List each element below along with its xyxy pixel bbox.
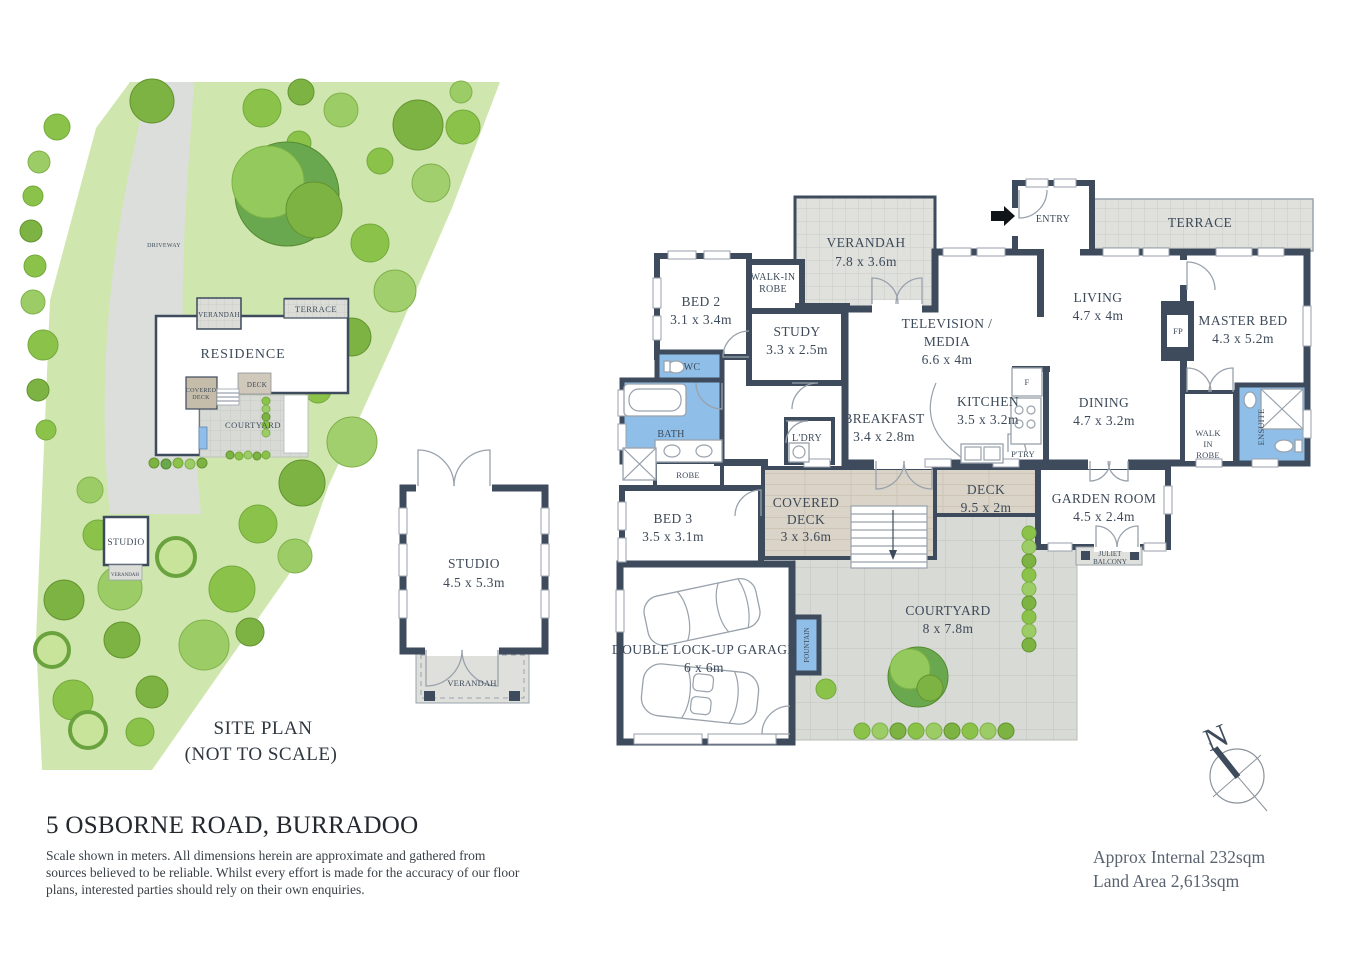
bush-icon bbox=[262, 397, 270, 405]
laundry-label: L'DRY bbox=[792, 433, 822, 444]
toilet-cistern bbox=[664, 361, 670, 372]
deck-label: DECK bbox=[967, 482, 1005, 497]
north-compass-icon: N bbox=[1199, 716, 1267, 811]
window bbox=[399, 590, 407, 618]
bush-icon bbox=[1022, 554, 1036, 568]
window bbox=[1252, 459, 1278, 467]
tree-icon bbox=[20, 220, 42, 242]
site-verandah-label: VERANDAH bbox=[198, 311, 240, 319]
door-opening bbox=[1044, 246, 1080, 258]
bush-icon bbox=[262, 429, 270, 437]
verandah-post bbox=[424, 691, 435, 701]
tree-icon bbox=[324, 93, 358, 127]
tree-icon bbox=[36, 420, 56, 440]
master-wir-label: WALK bbox=[1195, 428, 1221, 438]
window bbox=[616, 590, 624, 632]
bed3-dims: 3.5 x 3.1m bbox=[642, 529, 704, 544]
site-plan-caption-2: (NOT TO SCALE) bbox=[185, 744, 338, 765]
deck-dims: 9.5 x 2m bbox=[961, 500, 1012, 515]
garage-dims: 6 x 6m bbox=[684, 660, 724, 675]
kitchen-dims: 3.5 x 3.2m bbox=[957, 412, 1019, 427]
studio-plan: STUDIO 4.5 x 5.3m VERANDAH bbox=[399, 450, 549, 703]
window bbox=[541, 508, 549, 534]
door-opening bbox=[872, 300, 922, 313]
bed2-dims: 3.1 x 3.4m bbox=[670, 312, 732, 327]
tree-icon bbox=[21, 290, 45, 314]
tree-icon bbox=[28, 330, 58, 360]
floorplan-page: DRIVEWAY bbox=[0, 0, 1358, 960]
window bbox=[399, 544, 407, 576]
window bbox=[1216, 248, 1252, 256]
window bbox=[1054, 179, 1076, 187]
window bbox=[1303, 410, 1311, 438]
verandah-post bbox=[509, 691, 520, 701]
window bbox=[541, 590, 549, 618]
bush-icon bbox=[944, 723, 960, 739]
site-plan-caption: SITE PLAN bbox=[214, 718, 313, 739]
site-studio: STUDIO VERANDAH bbox=[104, 517, 148, 580]
stairs bbox=[851, 506, 927, 568]
driveway-label: DRIVEWAY bbox=[147, 243, 181, 249]
tree-icon bbox=[412, 164, 450, 202]
toilet-cistern bbox=[1295, 440, 1302, 452]
disclaimer-line: Scale shown in meters. All dimensions he… bbox=[46, 848, 486, 863]
tv-media-label-2: MEDIA bbox=[924, 334, 970, 349]
bush-icon bbox=[872, 723, 888, 739]
bush-icon bbox=[1022, 596, 1036, 610]
fireplace-label: FP bbox=[1173, 326, 1183, 336]
entry-label: ENTRY bbox=[1036, 214, 1070, 225]
wall-stub bbox=[1180, 252, 1187, 260]
bush-icon bbox=[908, 723, 924, 739]
site-studio-verandah-label: VERANDAH bbox=[111, 573, 139, 578]
verandah-label: VERANDAH bbox=[827, 235, 906, 250]
toilet-icon bbox=[1275, 440, 1293, 452]
bush-icon bbox=[998, 723, 1014, 739]
window bbox=[704, 251, 730, 259]
tree-icon bbox=[446, 110, 480, 144]
tree-icon bbox=[28, 151, 50, 173]
bed3-label: BED 3 bbox=[653, 511, 692, 526]
tree-icon bbox=[288, 79, 314, 105]
tv-media-dims: 6.6 x 4m bbox=[922, 352, 973, 367]
tree-icon bbox=[351, 224, 389, 262]
studio-verandah-label: VERANDAH bbox=[447, 678, 496, 688]
window bbox=[618, 502, 626, 530]
land-area-text: Land Area 2,613sqm bbox=[1093, 871, 1240, 891]
approx-internal-text: Approx Internal 232sqm bbox=[1093, 847, 1265, 867]
bath-label: BATH bbox=[657, 429, 684, 440]
bush-icon bbox=[149, 458, 159, 468]
compass-north-label: N bbox=[1199, 716, 1234, 758]
window bbox=[1164, 486, 1172, 514]
garage-door bbox=[634, 734, 702, 744]
studio-label: STUDIO bbox=[448, 556, 500, 571]
verandah-area bbox=[795, 197, 935, 309]
robe-label: ROBE bbox=[676, 470, 699, 480]
site-terrace-label: TERRACE bbox=[295, 304, 337, 314]
site-pool bbox=[199, 427, 207, 449]
room-garden bbox=[1038, 467, 1168, 547]
bush-icon bbox=[1022, 568, 1036, 582]
window bbox=[1258, 248, 1284, 256]
garage-door bbox=[708, 734, 776, 744]
door-arc bbox=[792, 383, 818, 409]
walkin-robe-label: WALK-IN bbox=[751, 272, 796, 283]
main-floor-plan: VERANDAH 7.8 x 3.6m ENTRY TERRACE BED 2 … bbox=[612, 179, 1313, 744]
master-bed-dims: 4.3 x 5.2m bbox=[1212, 331, 1274, 346]
door-arc bbox=[454, 450, 490, 486]
balcony-post bbox=[1130, 551, 1139, 560]
bush-icon bbox=[235, 452, 243, 460]
window bbox=[653, 316, 661, 340]
window bbox=[1026, 179, 1048, 187]
juliet-label: JULIET bbox=[1099, 550, 1123, 558]
bush-icon bbox=[262, 451, 270, 459]
tree-icon bbox=[27, 379, 49, 401]
disclaimer-line: sources believed to be reliable. Whilst … bbox=[46, 865, 520, 880]
tree-icon bbox=[278, 539, 312, 573]
master-bed-label: MASTER BED bbox=[1198, 313, 1287, 328]
courtyard-label: COURTYARD bbox=[905, 603, 990, 618]
bush-icon bbox=[226, 451, 234, 459]
window bbox=[925, 459, 951, 467]
tree-icon bbox=[816, 679, 836, 699]
tree-icon bbox=[450, 81, 472, 103]
tree-icon bbox=[327, 417, 377, 467]
courtyard-dims: 8 x 7.8m bbox=[923, 621, 974, 636]
bush-icon bbox=[1022, 624, 1036, 638]
window bbox=[1144, 543, 1166, 551]
site-covered-deck-label: DECK bbox=[192, 395, 210, 401]
door-arc bbox=[418, 450, 454, 486]
site-porch bbox=[284, 395, 308, 453]
window bbox=[618, 538, 626, 562]
bush-icon bbox=[262, 405, 270, 413]
studio-dims: 4.5 x 5.3m bbox=[443, 575, 505, 590]
tree-icon bbox=[44, 114, 70, 140]
plan-graphic: DRIVEWAY bbox=[0, 0, 1358, 960]
tree-icon bbox=[77, 477, 103, 503]
tree-icon bbox=[209, 566, 255, 612]
tree-icon bbox=[279, 460, 325, 506]
fountain-label: FOUNTAIN bbox=[803, 627, 811, 662]
window bbox=[541, 544, 549, 576]
site-courtyard-label: COURTYARD bbox=[225, 420, 281, 430]
tree-icon bbox=[126, 718, 154, 746]
tree-icon bbox=[236, 618, 264, 646]
bush-icon bbox=[244, 451, 252, 459]
living-label: LIVING bbox=[1074, 290, 1123, 305]
bush-icon bbox=[926, 723, 942, 739]
window bbox=[1048, 543, 1072, 551]
bed2-label: BED 2 bbox=[681, 294, 720, 309]
tree-icon bbox=[130, 79, 174, 123]
pantry-label: P'TRY bbox=[1011, 449, 1035, 459]
master-wir-label-3: ROBE bbox=[1196, 450, 1219, 460]
tree-icon bbox=[44, 580, 84, 620]
tree-icon bbox=[179, 620, 229, 670]
tv-media-label: TELEVISION / bbox=[902, 316, 993, 331]
bush-icon bbox=[890, 723, 906, 739]
window bbox=[977, 248, 1005, 256]
bush-icon bbox=[980, 723, 996, 739]
bush-icon bbox=[1022, 638, 1036, 652]
tree-icon bbox=[917, 675, 943, 701]
bush-icon bbox=[253, 452, 261, 460]
tree-icon bbox=[393, 100, 443, 150]
page-title: 5 OSBORNE ROAD, BURRADOO bbox=[46, 812, 419, 839]
dining-dims: 4.7 x 3.2m bbox=[1073, 413, 1135, 428]
bush-icon bbox=[185, 459, 195, 469]
site-residence-label: RESIDENCE bbox=[200, 347, 285, 362]
wall-kitchen bbox=[1043, 366, 1049, 465]
wall-entry-hall bbox=[1037, 252, 1044, 317]
tree-icon bbox=[70, 712, 106, 748]
tree-icon bbox=[374, 270, 416, 312]
fridge-label: F bbox=[1025, 377, 1030, 387]
bush-icon bbox=[854, 723, 870, 739]
balcony-post bbox=[1081, 551, 1090, 560]
bush-icon bbox=[173, 458, 183, 468]
disclaimer-line: plans, interested parties should rely on… bbox=[46, 882, 365, 897]
bush-icon bbox=[1022, 610, 1036, 624]
tree-icon bbox=[104, 622, 140, 658]
garden-room-dims: 4.5 x 2.4m bbox=[1073, 509, 1135, 524]
tree-icon bbox=[239, 505, 277, 543]
tree-icon bbox=[24, 255, 46, 277]
garden-room-label: GARDEN ROOM bbox=[1052, 491, 1157, 506]
site-deck-label: DECK bbox=[247, 381, 267, 389]
site-covered-deck-label: COVERED bbox=[186, 388, 217, 394]
window bbox=[1143, 248, 1169, 256]
study-label: STUDY bbox=[773, 324, 820, 339]
site-studio-label: STUDIO bbox=[107, 538, 144, 548]
ensuite-label: ENSUITE bbox=[1256, 409, 1266, 446]
wall-segment bbox=[795, 303, 850, 310]
tree-icon bbox=[243, 89, 281, 127]
tree-icon bbox=[157, 538, 195, 576]
tree-icon bbox=[286, 182, 342, 238]
tree-icon bbox=[136, 676, 168, 708]
tree-icon bbox=[23, 186, 43, 206]
breakfast-label: BREAKFAST bbox=[843, 411, 925, 426]
breakfast-dims: 3.4 x 2.8m bbox=[853, 429, 915, 444]
bush-icon bbox=[962, 723, 978, 739]
garage-label: DOUBLE LOCK-UP GARAGE bbox=[612, 642, 796, 657]
bush-icon bbox=[1022, 526, 1036, 540]
window bbox=[943, 248, 971, 256]
window bbox=[1196, 459, 1222, 467]
window bbox=[618, 424, 626, 450]
window bbox=[653, 278, 661, 308]
walkin-robe-label-2: ROBE bbox=[759, 284, 787, 295]
window bbox=[668, 251, 696, 259]
covered-deck-dims: 3 x 3.6m bbox=[781, 529, 832, 544]
covered-deck-label: COVERED bbox=[773, 495, 840, 510]
master-wir-label-2: IN bbox=[1203, 439, 1212, 449]
study-dims: 3.3 x 2.5m bbox=[766, 342, 828, 357]
living-dims: 4.7 x 4m bbox=[1073, 308, 1124, 323]
covered-deck-label-2: DECK bbox=[787, 512, 825, 527]
basin-icon bbox=[1244, 392, 1256, 408]
dining-label: DINING bbox=[1079, 395, 1129, 410]
juliet-label-2: BALCONY bbox=[1093, 558, 1127, 566]
verandah-dims: 7.8 x 3.6m bbox=[835, 254, 897, 269]
wc-label: WC bbox=[684, 362, 701, 373]
terrace-label: TERRACE bbox=[1168, 215, 1232, 230]
kitchen-label: KITCHEN bbox=[957, 394, 1019, 409]
window bbox=[1303, 306, 1311, 346]
bush-icon bbox=[1022, 540, 1036, 554]
window bbox=[399, 508, 407, 534]
tree-icon bbox=[35, 633, 69, 667]
bush-icon bbox=[1022, 582, 1036, 596]
tree-icon bbox=[367, 148, 393, 174]
bush-icon bbox=[161, 459, 171, 469]
window bbox=[1103, 248, 1139, 256]
bush-icon bbox=[197, 458, 207, 468]
